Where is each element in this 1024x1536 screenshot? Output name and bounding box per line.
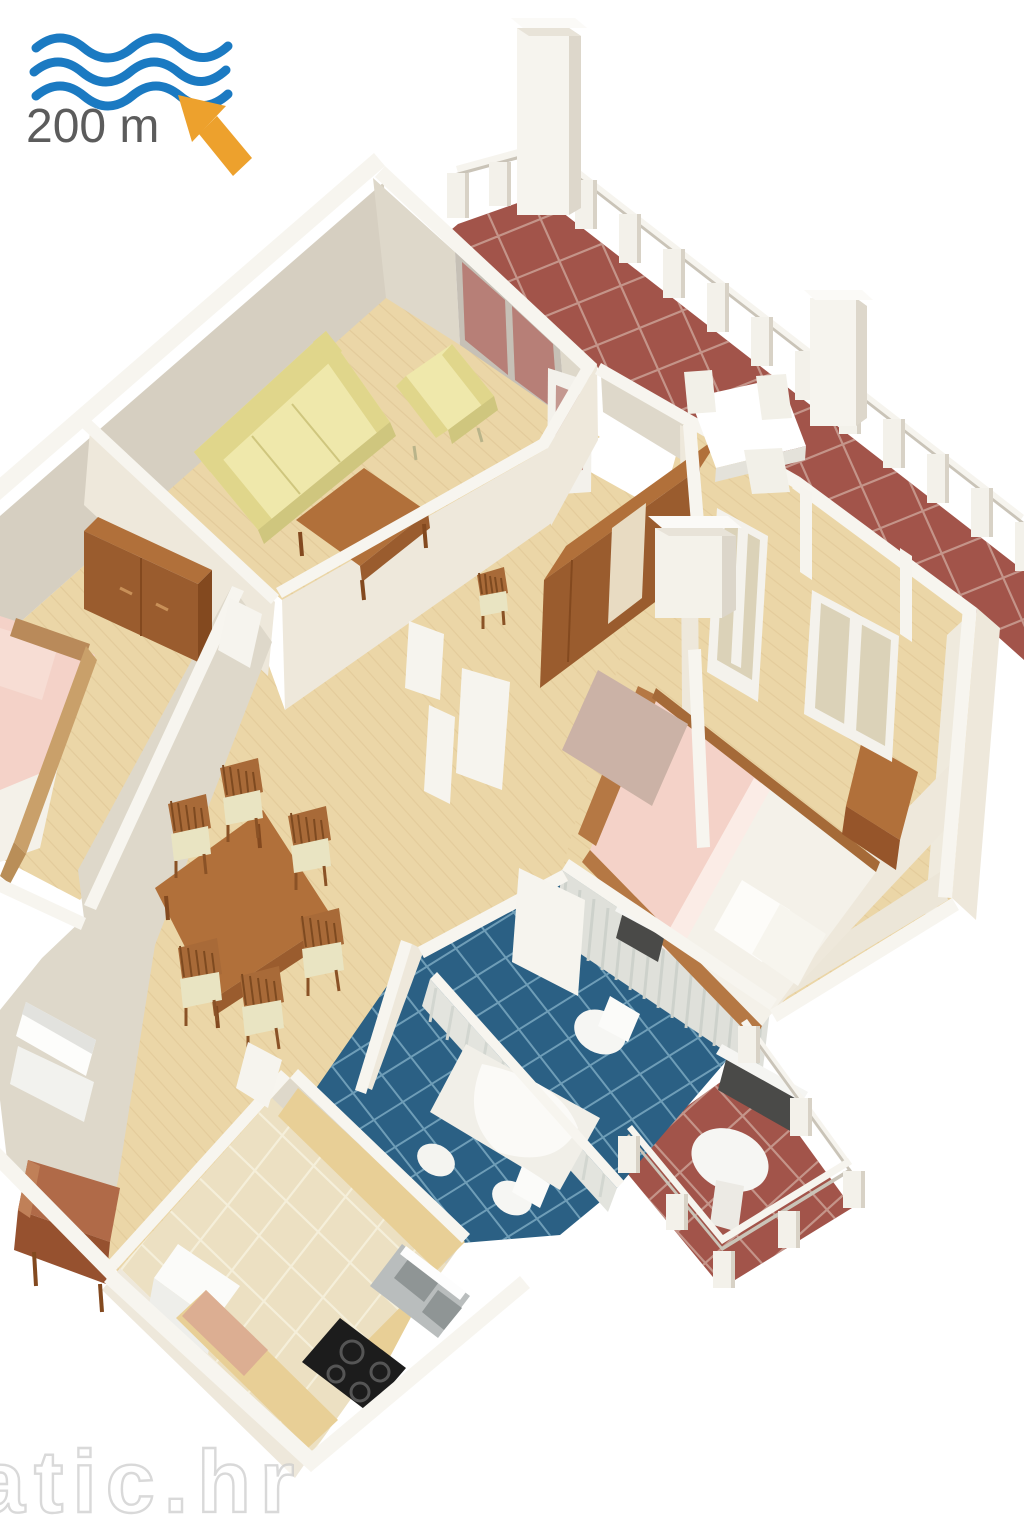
svg-text:atic.hr: atic.hr xyxy=(0,1432,303,1531)
svg-text:200 m: 200 m xyxy=(26,100,159,153)
